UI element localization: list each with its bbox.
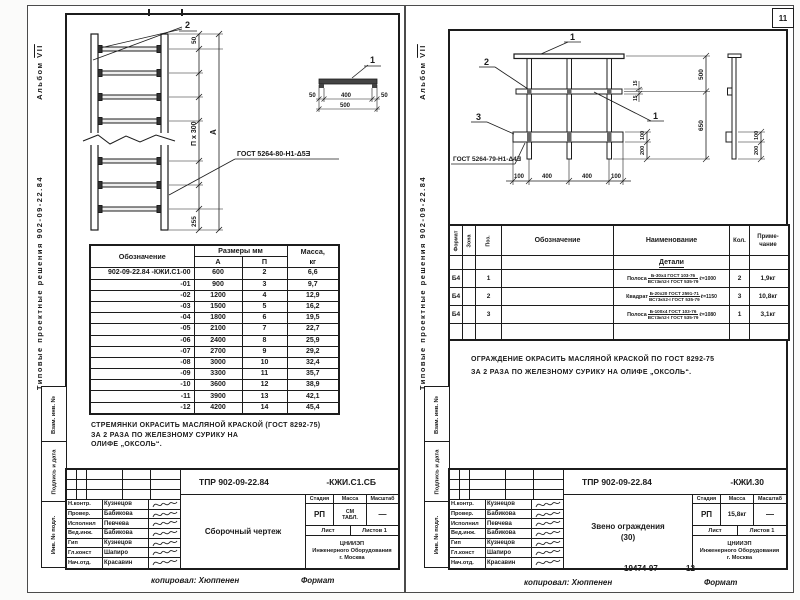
table-row: -072700929,2 — [90, 346, 339, 357]
col-header: П — [242, 257, 287, 268]
dim-label: 15 — [633, 80, 639, 86]
table-row: -052100722,7 — [90, 324, 339, 335]
right-dims — [613, 53, 710, 162]
strip-dims — [625, 129, 651, 162]
dim-label: 15 — [633, 95, 639, 101]
signature — [532, 558, 563, 567]
spec-empty-row — [450, 324, 788, 339]
title-block-signatures: Н.контр.КузнецовПровер.БабиковаИсполнилП… — [450, 470, 564, 568]
table-row: -0933001135,7 — [90, 369, 339, 380]
stage-value: РП — [693, 504, 721, 525]
signature — [149, 539, 180, 548]
signer-row: Н.контр.Кузнецов — [450, 500, 563, 510]
col-header: Наименование — [614, 226, 730, 255]
doc-designation: ТПР 902-09-22.84 -КЖИ.30 — [564, 470, 786, 495]
signature — [149, 558, 180, 567]
stamp-box-inv: Инв. № подл. — [424, 501, 450, 568]
col-header: Размеры мм — [194, 245, 287, 257]
section-title: Детали — [659, 258, 684, 268]
dim-label: 400 — [341, 93, 352, 99]
stamp-box-inv: Инв. № подл. — [41, 501, 67, 568]
right-signers: Н.контр.КузнецовПровер.БабиковаИсполнилП… — [450, 500, 563, 568]
callout-label: 1 — [653, 111, 658, 121]
signer-row: ГипКузнецов — [450, 539, 563, 549]
sheet-label: Лист — [306, 526, 351, 535]
sheets-label: Листов 1 — [738, 526, 786, 535]
col-header: Кол. — [730, 226, 750, 255]
signature — [149, 529, 180, 538]
table-row: -041800619,5 — [90, 313, 339, 324]
format-label: Формат — [301, 576, 334, 585]
table-row: -031500516,2 — [90, 301, 339, 312]
stamp-box-vzam: Взам. инв. № — [424, 386, 450, 443]
mass-header: Масса — [721, 495, 754, 503]
signer-row: ИсполнилПевчева — [450, 519, 563, 529]
sheet-number: 12 — [686, 564, 695, 573]
title-block: Н.контр.КузнецовПровер.БабиковаИсполнилП… — [448, 468, 788, 570]
title-block-signatures: Н.контр.КузнецовПровер.БабиковаИсполнилП… — [67, 470, 181, 568]
col-header: Формат — [453, 230, 459, 251]
sheets-label: Листов 1 — [351, 526, 398, 535]
mass-value: СМТАБЛ. — [334, 504, 367, 525]
spec-rows: Б41ПолосаБ-30х4 ГОСТ 103-76ВСт3кп2-I ГОС… — [450, 270, 788, 324]
page-number: 11 — [772, 8, 794, 28]
table-row: -0190039,7 — [90, 279, 339, 290]
right-page: 11 Альбом VII Типовые проектные решения … — [405, 5, 794, 593]
weld-note: ГОСТ 5264-80-Н1-Δ5Ǝ — [237, 151, 311, 158]
signer-row: ИсполнилПевчева — [67, 519, 180, 529]
signer-row: Нач.отд.Красавин — [67, 558, 180, 568]
left-signers: Н.контр.КузнецовПровер.БабиковаИсполнилП… — [67, 500, 180, 568]
stamp-box-podpis: Подпись и дата — [424, 441, 450, 503]
title-block-right: Стадия Масса Масштаб РП 15,8кг — Лист Ли… — [693, 495, 786, 568]
scanned-sheet: Альбом VII Типовые проектные решения 902… — [0, 0, 800, 600]
table-row: 902-09-22.84 -КЖИ.С1-0060026,6 — [90, 268, 339, 279]
spec-row: Б43ПолосаБ-100х4 ГОСТ 103-76ВСт3кп2-I ГО… — [450, 306, 788, 324]
signer-row: Гл.констШапиро — [67, 548, 180, 558]
doc-designation: ТПР 902-09-22.84 -КЖИ.С1.СБ — [181, 470, 398, 495]
spec-section-row: Детали — [450, 256, 788, 270]
paint-note: ОГРАЖДЕНИЕ ОКРАСИТЬ МАСЛЯНОЙ КРАСКОЙ ПО … — [471, 353, 714, 379]
signature — [532, 500, 563, 509]
table-row: -021200412,9 — [90, 290, 339, 301]
dim-label: 400 — [542, 174, 553, 180]
railing-drawing: 1 2 3 1 500 650 15 15 — [451, 31, 784, 214]
dim-label: 50 — [191, 36, 198, 44]
table-row: -1036001238,9 — [90, 380, 339, 391]
dim-label: 100 — [640, 131, 646, 140]
dim-label: 200 — [640, 146, 646, 155]
top-view: 1 50 400 50 500 — [309, 55, 388, 112]
spec-row: Б41ПолосаБ-30х4 ГОСТ 103-76ВСт3кп2-I ГОС… — [450, 270, 788, 288]
organization: ЦНИИЭП Инженерного Оборудования г. Москв… — [693, 536, 786, 567]
format-label: Формат — [704, 578, 737, 587]
ladder-rail-right — [161, 34, 168, 230]
signature — [149, 510, 180, 519]
signature — [532, 510, 563, 519]
dim-label: П х 300 — [191, 121, 198, 146]
paint-note: СТРЕМЯНКИ ОКРАСИТЬ МАСЛЯНОЙ КРАСКОЙ (ГОС… — [91, 421, 320, 450]
col-header: Обозначение — [502, 226, 614, 255]
dim-label: 650 — [698, 120, 705, 131]
revision-grid — [450, 470, 563, 500]
scale-header: Масштаб — [367, 495, 398, 503]
railing-posts — [527, 56, 612, 159]
signature — [149, 519, 180, 528]
scale-value: — — [754, 504, 786, 525]
copied-by: копировал: Хюппенен — [151, 576, 239, 585]
table-row: -0830001032,4 — [90, 357, 339, 368]
organization: ЦНИИЭП Инженерного Оборудования г. Москв… — [306, 536, 398, 567]
dim-label: 400 — [582, 174, 593, 180]
left-page: Альбом VII Типовые проектные решения 902… — [27, 5, 405, 593]
dim-label: А — [209, 129, 218, 135]
revision-grid — [67, 470, 180, 500]
dim-table-body: 902-09-22.84 -КЖИ.С1-0060026,6-0190039,7… — [90, 268, 339, 414]
ladder-rail-left — [91, 34, 98, 230]
callout-label: 2 — [484, 57, 489, 67]
table-row: -1139001342,1 — [90, 391, 339, 402]
col-header: А — [194, 257, 242, 268]
table-row: -1242001445,4 — [90, 402, 339, 414]
spec-header: Формат Зона Поз. Обозначение Наименовани… — [450, 226, 788, 256]
ladder-drawing: 2 50 П х 300 255 — [67, 15, 396, 243]
doc-title: Сборочный чертеж — [181, 495, 306, 568]
signer-row: Вед.инж.Бабикова — [450, 529, 563, 539]
stage-header: Стадия — [306, 495, 334, 503]
signer-row: ГипКузнецов — [67, 539, 180, 549]
signer-row: Н.контр.Кузнецов — [67, 500, 180, 510]
title-block: Н.контр.КузнецовПровер.БабиковаИсполнилП… — [65, 468, 400, 570]
stamp-number: 19474-97 — [624, 564, 658, 573]
signature — [532, 539, 563, 548]
table-row: -062400825,9 — [90, 335, 339, 346]
stage-header: Стадия — [693, 495, 721, 503]
callout-label: 1 — [570, 32, 575, 42]
callout-label: 3 — [476, 112, 481, 122]
scale-header: Масштаб — [754, 495, 786, 503]
break-mask — [87, 133, 175, 145]
signer-row: Нач.отд.Красавин — [450, 558, 563, 568]
stamp-box-podpis: Подпись и дата — [41, 441, 67, 503]
signer-row: Гл.констШапиро — [450, 548, 563, 558]
signature — [532, 548, 563, 557]
dim-label: 100 — [611, 174, 622, 180]
stamp-box-vzam: Взам. инв. № — [41, 386, 67, 443]
sheet-label: Лист — [693, 526, 738, 535]
dim-label: 200 — [754, 146, 760, 155]
album-label: Альбом VII — [35, 43, 44, 101]
ladder-rungs — [98, 46, 161, 213]
callout-label: 2 — [185, 20, 190, 30]
dim-label: 50 — [309, 93, 316, 99]
copied-by: копировал: Хюппенен — [524, 578, 612, 587]
top-rail — [514, 54, 624, 59]
signature — [149, 548, 180, 557]
doc-title: Звено ограждения (30) — [564, 495, 693, 568]
dim-label: 500 — [340, 103, 351, 109]
scale-value: — — [367, 504, 398, 525]
dimension-table: Обозначение Размеры мм Масса,кг А П 902-… — [89, 244, 340, 415]
dim-label: 500 — [698, 69, 705, 80]
col-header: Поз. — [486, 235, 492, 246]
spec-row: Б42КвадратБ-20х20 ГОСТ 2591-71ВСт3кп2-I … — [450, 288, 788, 306]
spec-table: Формат Зона Поз. Обозначение Наименовани… — [448, 224, 790, 341]
dim-label: 50 — [381, 93, 388, 99]
side-view: 100 200 — [726, 54, 765, 162]
title-block-right: Стадия Масса Масштаб РП СМТАБЛ. — Лист Л… — [306, 495, 398, 568]
col-header: Приме-чание — [750, 226, 786, 255]
weld-note: ГОСТ 5264-79-Н1-Δ4Ǝ — [453, 156, 521, 163]
signature — [149, 500, 180, 509]
signature — [532, 529, 563, 538]
dim-label: 100 — [754, 131, 760, 140]
signer-row: Провер.Бабикова — [450, 510, 563, 520]
callout-label: 1 — [370, 55, 375, 65]
col-header: Масса,кг — [287, 245, 339, 268]
signer-row: Вед.инж.Бабикова — [67, 529, 180, 539]
signer-row: Провер.Бабикова — [67, 510, 180, 520]
album-label: Альбом VII — [418, 43, 427, 101]
signature — [532, 519, 563, 528]
stage-value: РП — [306, 504, 334, 525]
mass-value: 15,8кг — [721, 504, 754, 525]
col-header: Зона — [466, 234, 472, 247]
mass-header: Масса — [334, 495, 367, 503]
col-header: Обозначение — [90, 245, 194, 268]
dim-label: 255 — [191, 216, 198, 227]
dim-label: 100 — [514, 174, 525, 180]
